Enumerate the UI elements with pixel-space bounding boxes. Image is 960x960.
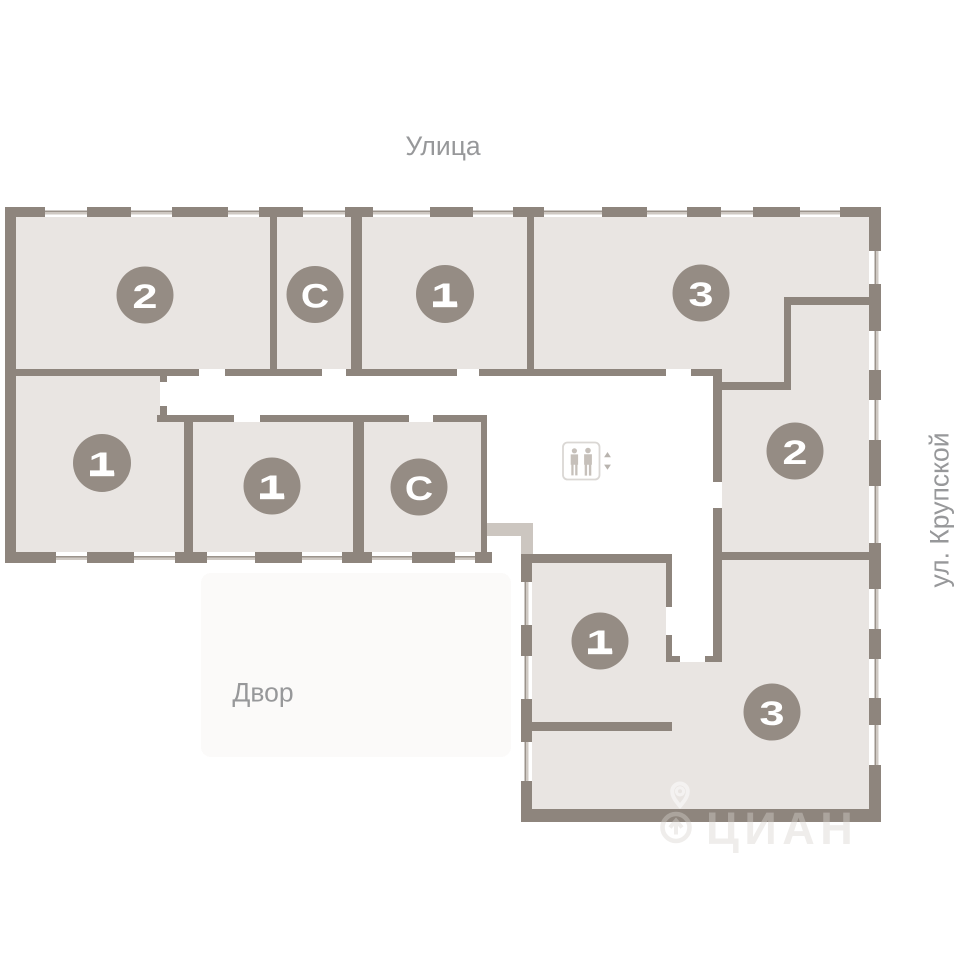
svg-text:1: 1 xyxy=(258,468,285,506)
svg-text:ул. Крупской: ул. Крупской xyxy=(925,432,955,587)
svg-text:2: 2 xyxy=(132,278,157,315)
svg-text:1: 1 xyxy=(88,445,115,483)
svg-text:ЦИАН: ЦИАН xyxy=(706,803,858,854)
svg-text:Улица: Улица xyxy=(405,131,481,161)
svg-text:2: 2 xyxy=(782,434,807,471)
svg-text:Двор: Двор xyxy=(232,678,293,708)
svg-text:1: 1 xyxy=(586,623,613,661)
svg-text:3: 3 xyxy=(759,695,784,732)
svg-text:С: С xyxy=(301,277,329,315)
svg-text:1: 1 xyxy=(431,276,458,314)
svg-text:3: 3 xyxy=(688,276,713,313)
svg-text:С: С xyxy=(405,469,433,507)
